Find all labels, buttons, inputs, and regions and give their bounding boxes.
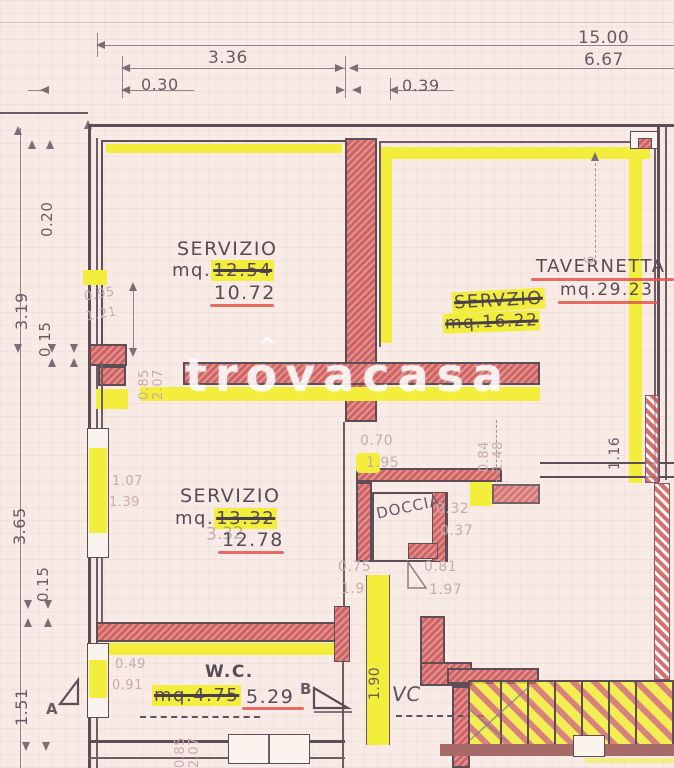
section-a-label: A bbox=[46, 702, 58, 717]
dim-small: 1.39 bbox=[109, 496, 140, 509]
dim-small: 1.16 bbox=[608, 418, 622, 470]
section-a-arrow-icon bbox=[58, 678, 84, 708]
arrow-icon bbox=[22, 742, 30, 751]
stair-tread bbox=[608, 682, 610, 744]
room-wc-new: 5.29 bbox=[246, 688, 294, 707]
arrow-icon bbox=[24, 600, 32, 609]
tick bbox=[345, 56, 346, 98]
area-prefix: mq. bbox=[172, 260, 211, 281]
dim-left-151: 1.51 bbox=[14, 650, 30, 726]
room-servizio-mid-name: SERVIZIO bbox=[180, 487, 280, 506]
room-wc-name: W.C. bbox=[205, 664, 254, 681]
wall-red-hatch bbox=[654, 483, 670, 680]
room-servzio-name: SERVZIO bbox=[452, 290, 546, 313]
red-underline bbox=[218, 551, 284, 554]
dim-small: 0.91 bbox=[112, 679, 143, 692]
scan-edge bbox=[0, 112, 88, 114]
arrow-icon bbox=[48, 358, 56, 367]
room-servizio-mid-new: 12.78 bbox=[222, 531, 284, 550]
dim-small: 1.9 bbox=[341, 582, 365, 596]
section-b-arrow-icon bbox=[312, 684, 354, 714]
floor-plan-scan: 15.00 6.67 3.36 0.30 0.39 0.20 3.19 0.15… bbox=[0, 0, 674, 768]
wall-highlight bbox=[585, 758, 674, 763]
room-servzio-line2: mq.16.22 bbox=[443, 310, 541, 333]
room-servzio-area: mq.16.22 bbox=[443, 312, 541, 332]
arrow-icon bbox=[335, 64, 344, 72]
dim-guide-vertical bbox=[595, 158, 596, 258]
dim-left-020: 0.20 bbox=[40, 165, 55, 237]
room2-top-line bbox=[379, 141, 656, 143]
arrow-icon bbox=[352, 86, 361, 94]
wall-highlight bbox=[106, 144, 342, 153]
wall-wc-right bbox=[342, 662, 344, 768]
arrow-icon bbox=[44, 618, 52, 627]
area-old-value: mq.4.75 bbox=[152, 685, 241, 706]
wall-red-wc-right bbox=[334, 606, 350, 662]
vc-label: VC bbox=[391, 684, 422, 704]
arrow-icon bbox=[591, 152, 599, 161]
arrow-icon bbox=[70, 344, 78, 353]
wall-red-hatch bbox=[645, 395, 659, 483]
room-servizio-top-name: SERVIZIO bbox=[177, 240, 277, 259]
watermark: trovacasa bbox=[185, 352, 511, 398]
wall-outer-right-inner bbox=[665, 126, 667, 480]
wall-red-stub bbox=[408, 543, 438, 559]
dim-small: 2.07 bbox=[188, 714, 201, 768]
dim-small: 1.90 bbox=[368, 640, 382, 700]
dim-small: 2.07 bbox=[152, 342, 165, 400]
top-rule bbox=[0, 22, 674, 23]
wall-highlight bbox=[470, 482, 492, 506]
room-wc-area: mq.4.75 bbox=[152, 687, 241, 705]
window-highlight bbox=[89, 448, 107, 533]
arrow-icon bbox=[336, 86, 345, 94]
wall-red-seg bbox=[492, 484, 540, 504]
area-old-value: 12.54 bbox=[211, 260, 274, 281]
arrow-icon bbox=[42, 742, 50, 751]
dim-top-half: 6.67 bbox=[584, 52, 624, 69]
stair-tread bbox=[554, 682, 556, 744]
dim-top-room: 3.36 bbox=[208, 50, 248, 67]
dim-left-365: 3.65 bbox=[12, 455, 28, 545]
room-tavernetta-name: TAVERNETTA bbox=[536, 258, 665, 276]
red-underline bbox=[210, 304, 274, 307]
dim-small: 0.84 bbox=[478, 424, 491, 472]
dim-small: 0.85 bbox=[174, 714, 187, 768]
wall-highlight bbox=[384, 147, 650, 159]
wall-red-notch bbox=[638, 138, 652, 149]
arrow-icon bbox=[349, 64, 358, 72]
wall-red-wc-top bbox=[96, 622, 346, 642]
dim-fragment: 6 bbox=[584, 246, 597, 264]
room-tavernetta-area: mq.29.23 bbox=[560, 282, 653, 299]
watermark-roof-icon: ^ bbox=[258, 336, 276, 358]
arrow-icon bbox=[46, 140, 54, 149]
red-underline bbox=[242, 707, 304, 710]
arrow-icon bbox=[14, 126, 22, 135]
wall-red-L-vert bbox=[420, 616, 445, 666]
dim-small: 0.81 bbox=[424, 560, 457, 574]
arrow-icon bbox=[40, 86, 49, 94]
dim-top-030: 0.30 bbox=[141, 77, 179, 93]
arrow-icon bbox=[129, 282, 137, 291]
wall-bottom-right bbox=[440, 744, 674, 756]
arrow-icon bbox=[24, 618, 32, 627]
wall-outer-top bbox=[88, 124, 674, 127]
arrow-icon bbox=[129, 348, 137, 357]
dim-top-039: 0.39 bbox=[402, 78, 440, 94]
room-servzio-line1: SERVZIO bbox=[451, 288, 545, 314]
wall-highlight bbox=[381, 147, 392, 343]
stair-tread bbox=[635, 682, 637, 744]
room-servizio-top-new: 10.72 bbox=[214, 284, 276, 303]
wall-highlight bbox=[629, 150, 642, 483]
wall-step bbox=[573, 735, 605, 757]
dim-small: 1.48 bbox=[492, 424, 505, 472]
dim-small: 1.07 bbox=[112, 475, 143, 488]
dim-small: 0.49 bbox=[115, 658, 146, 671]
arrow-icon bbox=[70, 358, 78, 367]
dim-small: 0.70 bbox=[360, 434, 393, 448]
dimline-667 bbox=[350, 68, 674, 69]
dim-small: 1.97 bbox=[429, 583, 462, 597]
room-servizio-top-area: mq.12.54 bbox=[172, 262, 274, 280]
section-b-label: B bbox=[300, 682, 312, 697]
red-underline bbox=[558, 301, 658, 304]
dim-small: 0.85 bbox=[138, 342, 151, 400]
wall-highlight bbox=[83, 270, 107, 285]
dim-left-015b: 0.15 bbox=[36, 538, 51, 602]
dim-top-total: 15.00 bbox=[578, 30, 629, 47]
tick bbox=[97, 33, 98, 57]
dimline-336 bbox=[122, 68, 345, 69]
window-highlight bbox=[89, 660, 107, 698]
door-dim-line bbox=[133, 288, 134, 350]
wall-highlight bbox=[107, 643, 345, 655]
dim-left-319: 3.19 bbox=[14, 240, 30, 330]
dim-small: 0.37 bbox=[440, 524, 473, 538]
window-divider bbox=[268, 735, 270, 763]
arrow-icon bbox=[14, 344, 22, 353]
dim-left-015a: 0.15 bbox=[38, 293, 53, 357]
wall-red-shower-left bbox=[356, 482, 372, 562]
dim-small: 1.95 bbox=[366, 456, 399, 470]
arrow-icon bbox=[121, 86, 130, 94]
wall-red-stub bbox=[89, 344, 127, 366]
dim-small: 0.75 bbox=[338, 560, 371, 574]
arrow-icon bbox=[28, 140, 36, 149]
stair-direction-lines bbox=[468, 680, 538, 746]
dim-small: 0.32 bbox=[436, 502, 469, 516]
